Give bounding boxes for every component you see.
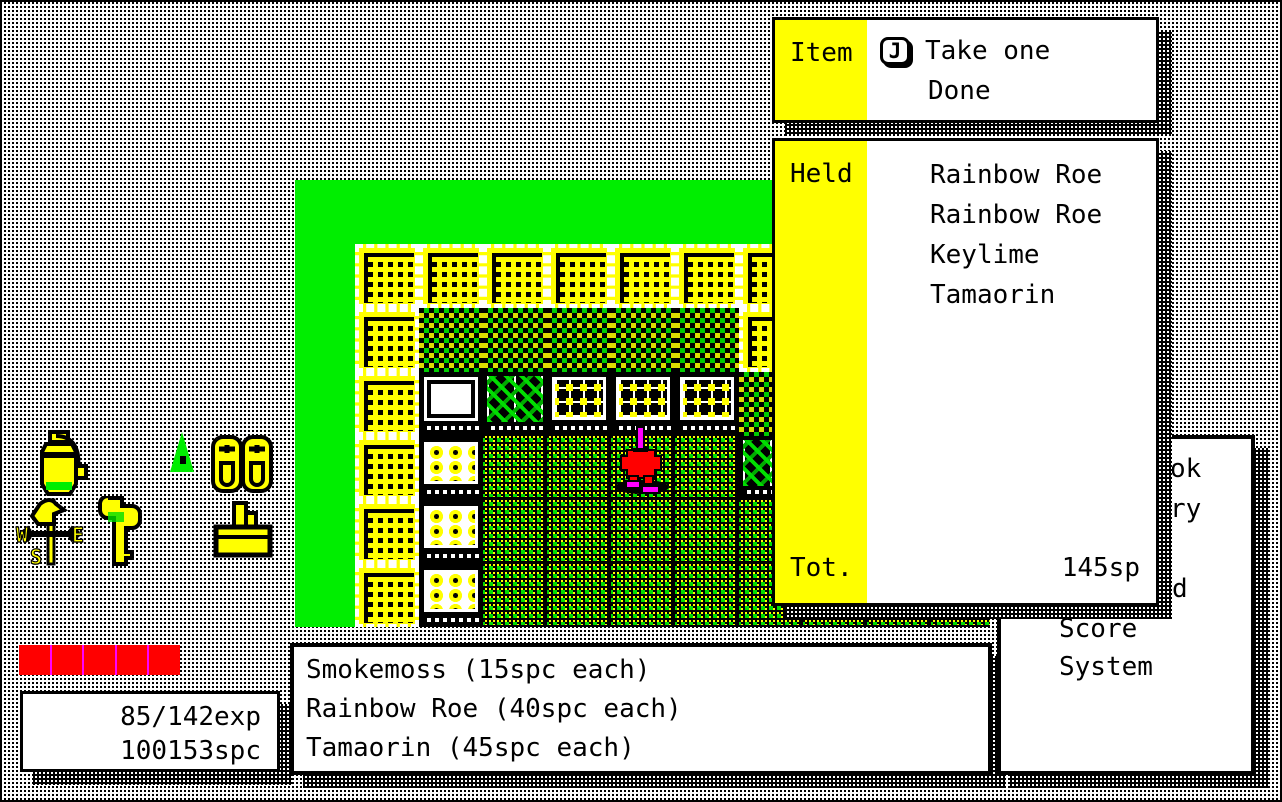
map-tile-crate	[483, 244, 547, 308]
held-item-list: Rainbow RoeRainbow RoeKeylimeTamaorin	[867, 141, 1156, 315]
menu-item-system[interactable]: System	[1059, 654, 1153, 680]
map-tile-crate	[355, 564, 419, 627]
hp-segment	[52, 645, 83, 675]
map-tile-floor	[547, 436, 611, 500]
map-tile-floor	[547, 500, 611, 564]
money-value: 100153spc	[23, 734, 261, 768]
list-item[interactable]: Rainbow Roe	[930, 195, 1156, 235]
map-tile-hedge	[675, 308, 739, 372]
item-menu: Item J Take one Done	[772, 17, 1159, 123]
key-icon	[90, 496, 142, 566]
map-tile-floor	[547, 564, 611, 627]
total-label: Tot.	[790, 548, 853, 588]
map-tile-veggie	[483, 372, 547, 436]
list-item[interactable]: Keylime	[930, 235, 1156, 275]
map-tile-crate	[547, 244, 611, 308]
svg-text:W: W	[16, 523, 29, 547]
list-item[interactable]: Smokemoss (15spc each)	[306, 651, 988, 690]
map-tile-crate	[355, 500, 419, 564]
list-item[interactable]: Tamaorin (45spc each)	[306, 729, 988, 768]
stats-box: 85/142exp 100153spc	[20, 691, 280, 772]
menu-item-fragment[interactable]: d	[1172, 576, 1188, 602]
map-tile-hedge	[547, 308, 611, 372]
map-tile-floor	[611, 500, 675, 564]
menu-item-score[interactable]: Score	[1059, 616, 1137, 642]
map-tile-eggs	[675, 372, 739, 436]
item-menu-label: Item	[790, 33, 867, 73]
item-label-column: Item	[775, 20, 867, 120]
map-tile-bin	[419, 564, 483, 627]
game-screen: W E S	[0, 0, 1282, 802]
map-tile-floor	[483, 436, 547, 500]
map-tile-hedge	[419, 308, 483, 372]
hp-segment	[84, 645, 115, 675]
tree-icon	[164, 430, 200, 478]
map-tile-floor	[675, 436, 739, 500]
item-menu-options: J Take one Done	[867, 20, 1156, 120]
map-tile-crate	[355, 308, 419, 372]
bottle-icon	[28, 430, 94, 502]
map-tile-eggs	[547, 372, 611, 436]
hp-bar	[19, 645, 180, 675]
map-tile-counter	[419, 372, 483, 436]
map-tile-hedge	[483, 308, 547, 372]
map-tile-floor	[675, 500, 739, 564]
map-tile-bin	[419, 436, 483, 500]
total-value: 145sp	[1062, 548, 1140, 588]
menu-item-fragment[interactable]: ry	[1170, 496, 1201, 522]
held-panel: Held Tot. Rainbow RoeRainbow RoeKeylimeT…	[772, 138, 1159, 606]
held-content: Rainbow RoeRainbow RoeKeylimeTamaorin 14…	[867, 141, 1156, 603]
svg-text:S: S	[30, 545, 42, 568]
map-tile-floor	[611, 564, 675, 627]
menu-item-done[interactable]: Done	[880, 71, 1156, 111]
message-lines: Smokemoss (15spc each)Rainbow Roe (40spc…	[306, 651, 988, 768]
list-item[interactable]: Tamaorin	[930, 275, 1156, 315]
weathervane-icon: W E S	[14, 496, 86, 568]
player-sprite	[613, 426, 669, 496]
svg-text:E: E	[72, 523, 84, 547]
map-tile-crate	[355, 436, 419, 500]
slippers-icon	[211, 435, 273, 495]
menu-item-fragment[interactable]: ok	[1170, 456, 1201, 482]
map-tile-crate	[355, 372, 419, 436]
map-tile-crate	[419, 244, 483, 308]
held-label-column: Held Tot.	[775, 141, 867, 603]
map-tile-floor	[675, 564, 739, 627]
hp-segment	[149, 645, 180, 675]
done-label: Done	[928, 71, 991, 111]
hp-segment	[19, 645, 50, 675]
menu-item-take-one[interactable]: J Take one	[880, 31, 1156, 71]
message-box: Smokemoss (15spc each)Rainbow Roe (40spc…	[290, 643, 992, 775]
list-item[interactable]: Rainbow Roe (40spc each)	[306, 690, 988, 729]
map-tile-crate	[675, 244, 739, 308]
basket-icon	[212, 499, 274, 561]
exp-value: 85/142exp	[23, 700, 261, 734]
map-tile-floor	[483, 500, 547, 564]
map-tile-crate	[611, 244, 675, 308]
take-one-label: Take one	[925, 31, 1050, 71]
j-keycap-icon: J	[880, 37, 910, 65]
list-item[interactable]: Rainbow Roe	[930, 155, 1156, 195]
held-label: Held	[790, 154, 867, 194]
map-tile-crate	[355, 244, 419, 308]
map-tile-hedge	[611, 308, 675, 372]
map-tile-floor	[483, 564, 547, 627]
map-tile-bin	[419, 500, 483, 564]
hp-segment	[117, 645, 148, 675]
